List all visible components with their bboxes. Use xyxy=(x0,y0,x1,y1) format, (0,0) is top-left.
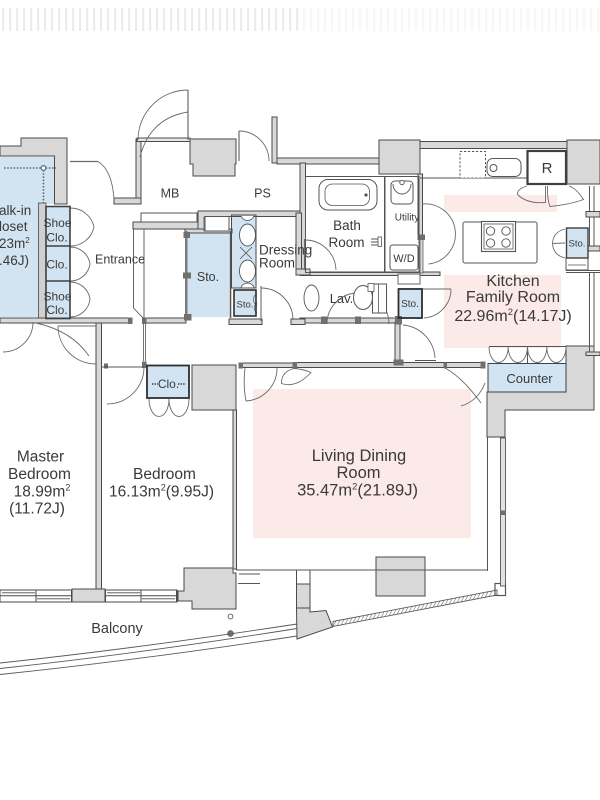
svg-text:Entrance: Entrance xyxy=(95,253,145,267)
svg-text:Bedroom: Bedroom xyxy=(8,466,71,483)
svg-text:22.96m2(14.17J): 22.96m2(14.17J) xyxy=(454,307,571,325)
svg-text:18.99m2: 18.99m2 xyxy=(14,483,71,501)
svg-text:(11.72J): (11.72J) xyxy=(9,501,65,518)
svg-text:Shoe: Shoe xyxy=(43,290,71,304)
svg-text:Room: Room xyxy=(328,235,364,250)
svg-text:Sto.: Sto. xyxy=(401,299,419,310)
svg-text:Sto.: Sto. xyxy=(197,270,219,284)
svg-text:Kitchen: Kitchen xyxy=(486,273,539,290)
svg-text:Clo.: Clo. xyxy=(46,231,67,245)
svg-text:.46J): .46J) xyxy=(0,253,29,268)
svg-text:35.47m2(21.89J): 35.47m2(21.89J) xyxy=(297,482,418,500)
svg-text:Utility: Utility xyxy=(395,213,419,224)
svg-text:PS: PS xyxy=(254,187,271,201)
svg-text:Sto.: Sto. xyxy=(569,239,586,250)
svg-text:Family Room: Family Room xyxy=(466,289,560,306)
svg-text:loset: loset xyxy=(0,219,28,234)
svg-text:16.13m2(9.95J): 16.13m2(9.95J) xyxy=(109,483,214,501)
svg-text:Counter: Counter xyxy=(506,371,553,386)
svg-text:Clo.: Clo. xyxy=(46,303,67,317)
svg-text:Clo.: Clo. xyxy=(46,258,67,272)
svg-text:Living Dining: Living Dining xyxy=(312,447,406,465)
svg-text:W/D: W/D xyxy=(393,253,414,265)
svg-text:Room: Room xyxy=(259,256,295,271)
svg-text:Room: Room xyxy=(336,464,380,482)
svg-text:Lav.: Lav. xyxy=(330,291,354,306)
svg-text:R: R xyxy=(542,160,553,177)
svg-text:Sto.: Sto. xyxy=(237,300,254,311)
svg-text:alk-in: alk-in xyxy=(0,203,31,218)
svg-text:Bath: Bath xyxy=(333,218,361,233)
svg-text:Bedroom: Bedroom xyxy=(133,466,196,483)
svg-text:Clo.: Clo. xyxy=(158,377,179,391)
svg-text:Master: Master xyxy=(17,449,64,466)
svg-text:Shoe: Shoe xyxy=(43,216,71,230)
svg-text:MB: MB xyxy=(161,187,180,201)
svg-text:Balcony: Balcony xyxy=(91,621,143,637)
